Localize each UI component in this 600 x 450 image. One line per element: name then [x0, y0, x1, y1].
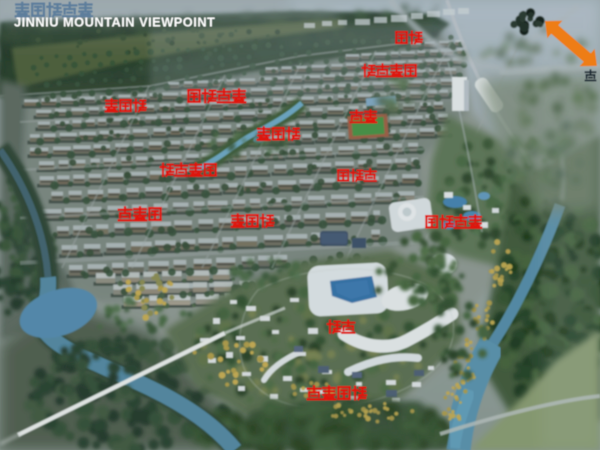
svg-text:JINNIU MOUNTAIN VIEWPOINT: JINNIU MOUNTAIN VIEWPOINT — [14, 14, 215, 29]
